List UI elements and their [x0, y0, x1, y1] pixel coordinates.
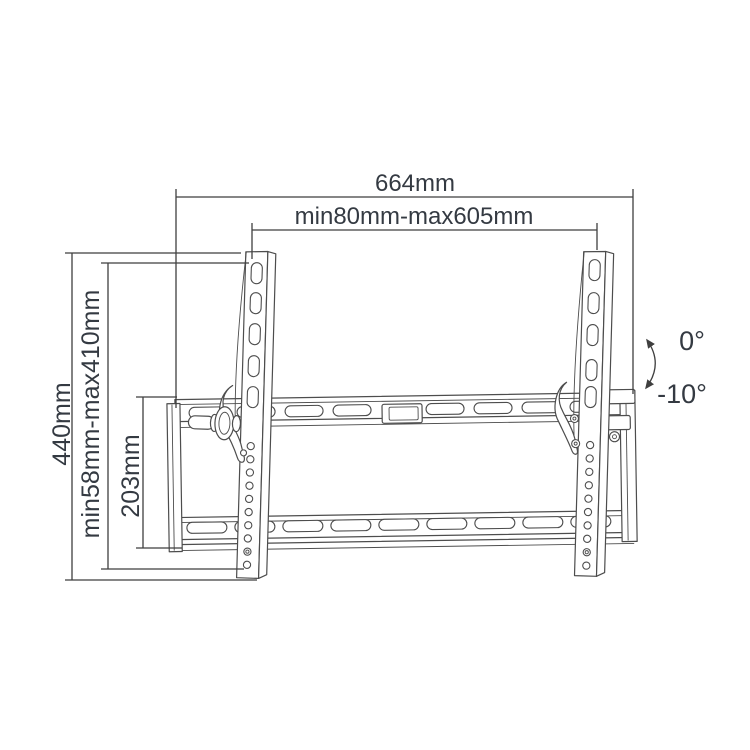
dim-label-horizontal-range: min80mm-max605mm	[295, 203, 534, 230]
tilt-angle-annotation: 0° -10°	[646, 326, 707, 409]
dimension-horizontal-range: min80mm-max605mm	[252, 203, 597, 259]
wall-plate-left-end-cap	[167, 404, 182, 552]
center-latch	[382, 404, 422, 424]
tv-mount-dimension-diagram: 664mm min80mm-max605mm 440mm min58mm-max…	[0, 0, 750, 750]
dim-label-vertical-range: min58mm-max410mm	[77, 290, 105, 539]
wall-plate	[167, 389, 637, 551]
dim-label-overall-height: 440mm	[48, 382, 76, 465]
dim-label-wall-plate-height: 203mm	[117, 434, 145, 517]
tilt-label-lower: -10°	[657, 379, 707, 409]
diagram-page: 664mm min80mm-max605mm 440mm min58mm-max…	[0, 0, 750, 750]
right-end-bolt	[609, 432, 619, 442]
tilt-label-upper: 0°	[679, 326, 705, 356]
tilt-arc-arrow	[646, 340, 655, 388]
dim-label-overall-width: 664mm	[375, 170, 455, 197]
